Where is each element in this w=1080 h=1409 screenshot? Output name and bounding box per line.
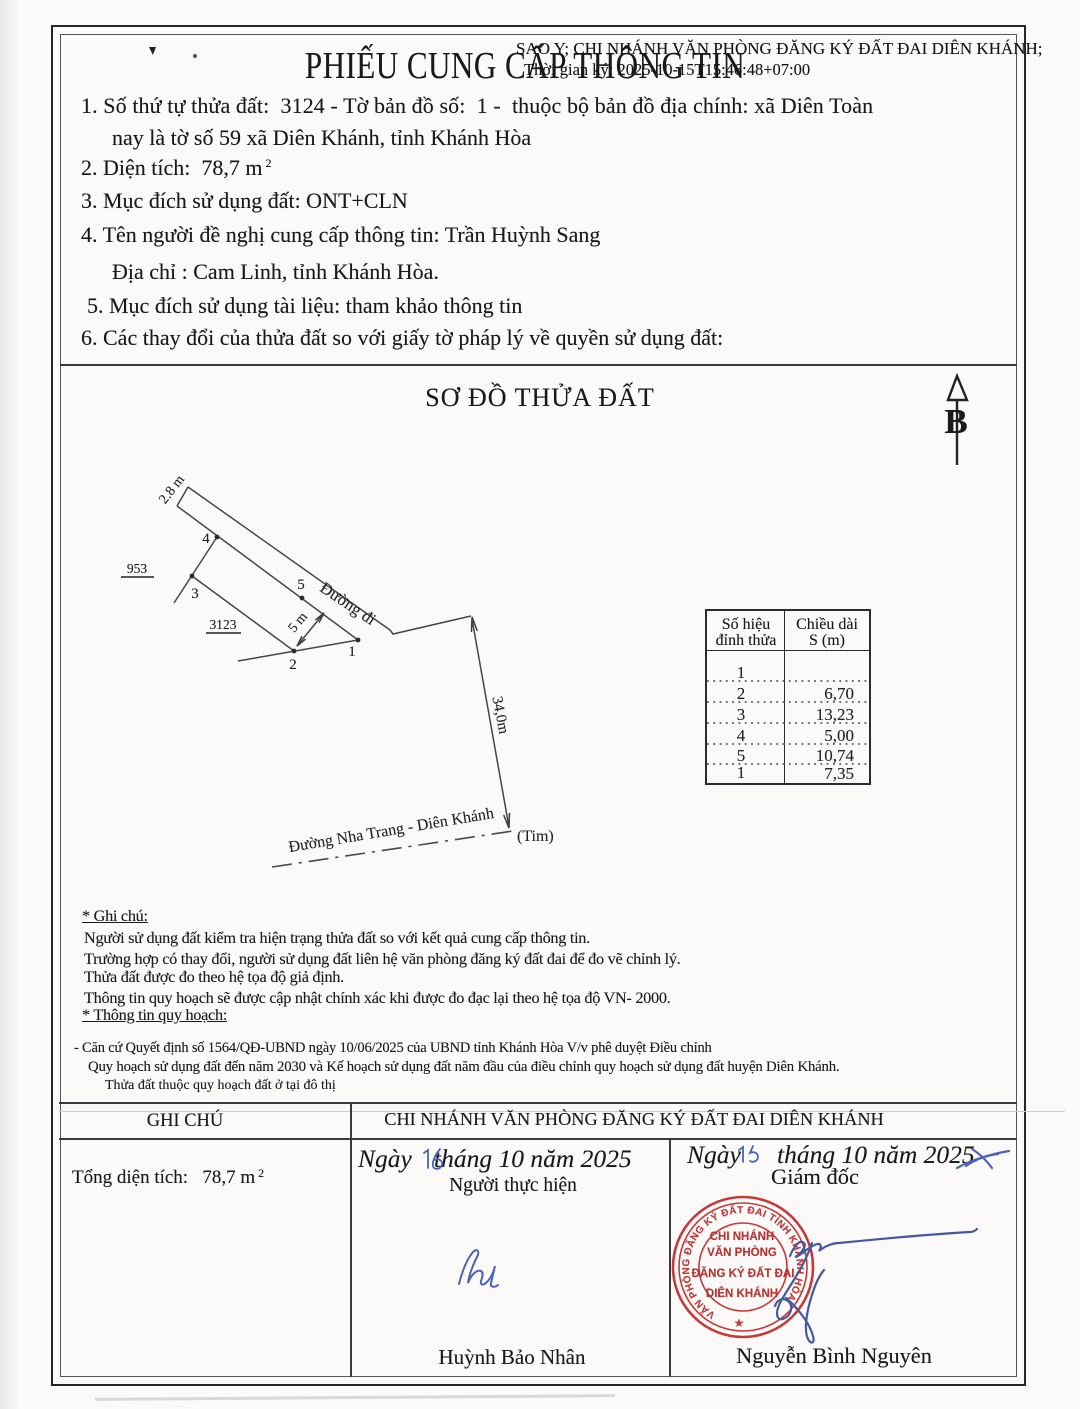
svg-text:1: 1 [348,644,356,660]
svg-text:CHI NHÁNH: CHI NHÁNH [710,1230,775,1243]
svg-text:VĂN PHÒNG: VĂN PHÒNG [707,1246,777,1259]
svg-text:2: 2 [289,657,297,673]
svg-text:2.8 m: 2.8 m [157,473,189,507]
svg-text:1: 1 [737,663,746,682]
svg-text:10,74: 10,74 [816,746,855,765]
svg-text:B: B [944,402,967,441]
svg-text:★: ★ [734,1316,745,1330]
svg-text:13,23: 13,23 [816,705,854,724]
svg-text:3123: 3123 [210,617,237,632]
svg-text:DIÊN KHÁNH: DIÊN KHÁNH [706,1287,778,1300]
svg-text:5,00: 5,00 [824,726,854,745]
svg-text:4: 4 [737,726,746,745]
svg-text:(Tim): (Tim) [517,828,554,845]
svg-text:Đường đi: Đường đi [317,578,380,629]
svg-text:953: 953 [127,561,148,576]
svg-text:5: 5 [297,577,305,593]
svg-text:3: 3 [737,705,746,724]
svg-text:7,35: 7,35 [824,764,854,783]
svg-text:3: 3 [191,586,199,602]
svg-text:ĐĂNG KÝ ĐẤT ĐAI: ĐĂNG KÝ ĐẤT ĐAI [692,1267,795,1280]
svg-text:1: 1 [737,763,746,782]
svg-text:4: 4 [202,531,210,547]
svg-text:5 m: 5 m [286,610,311,636]
svg-text:2: 2 [737,684,746,703]
svg-text:6,70: 6,70 [824,684,854,703]
